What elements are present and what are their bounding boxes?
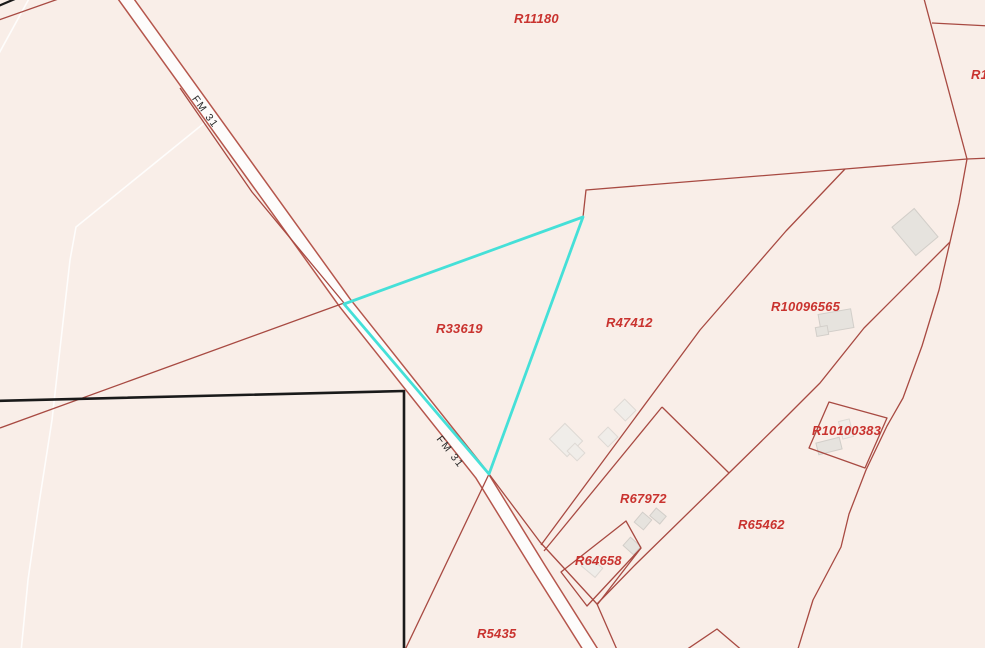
- parcel-label-R10096565: R10096565: [771, 299, 840, 314]
- parcel-boundary-line: [797, 159, 967, 648]
- parcel-label-R10100383: R10100383: [812, 423, 881, 438]
- parcel-boundary-line: [0, 303, 344, 428]
- parcel-label-R11180: R11180: [514, 11, 559, 26]
- parcel-boundary-line: [932, 23, 985, 26]
- parcel-boundary-line: [683, 629, 744, 648]
- parcel-label-R65462: R65462: [738, 517, 785, 532]
- parcel-label-partial: R1: [971, 67, 985, 82]
- parcel-boundary-line: [662, 407, 729, 473]
- parcel-map-svg: [0, 0, 985, 648]
- faint-boundary-line: [21, 120, 208, 648]
- parcel-boundary-line: [404, 474, 489, 648]
- selected-parcel-highlight: [344, 217, 583, 474]
- building-footprint: [892, 209, 938, 256]
- parcel-boundary-line: [597, 242, 950, 604]
- faint-boundary-line: [0, 0, 30, 57]
- parcel-boundary-line: [541, 169, 845, 545]
- building-footprint: [815, 326, 828, 337]
- parcel-boundary-line: [583, 158, 985, 217]
- map-canvas[interactable]: R11180R33619R47412R10096565R10100383R679…: [0, 0, 985, 648]
- building-footprint: [614, 399, 636, 421]
- black-boundary-outline: [0, 391, 404, 648]
- parcel-label-R67972: R67972: [620, 491, 667, 506]
- black-boundary-segment: [0, 0, 22, 7]
- parcel-label-R33619: R33619: [436, 321, 483, 336]
- parcel-label-R47412: R47412: [606, 315, 653, 330]
- parcel-label-R5435: R5435: [477, 626, 516, 641]
- parcel-boundary-line: [0, 0, 64, 21]
- building-footprint: [634, 512, 652, 530]
- parcel-label-R64658: R64658: [575, 553, 622, 568]
- building-footprint: [598, 427, 618, 447]
- building-footprint: [650, 508, 666, 524]
